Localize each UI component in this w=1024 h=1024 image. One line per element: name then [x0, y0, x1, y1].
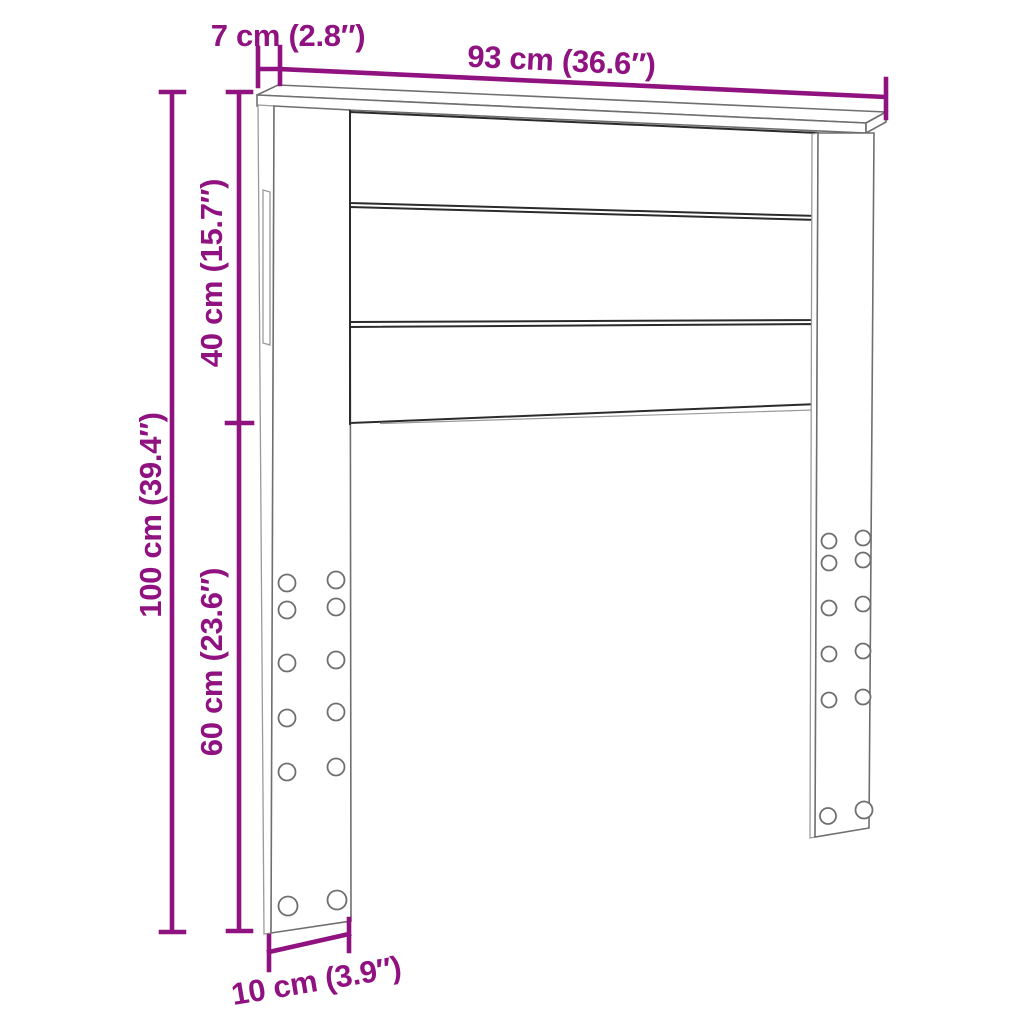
- screw-hole: [856, 553, 871, 568]
- left-leg: [258, 105, 351, 934]
- diagram-canvas: 7 cm (2.8″) 93 cm (36.6″) 100 cm (39.4″)…: [0, 0, 1024, 1024]
- screw-hole: [820, 808, 836, 824]
- screw-hole: [822, 601, 837, 616]
- screw-hole: [822, 647, 837, 662]
- screw-hole: [279, 710, 296, 727]
- left-leg-front-face: [271, 106, 351, 933]
- dimension-total-height: 100 cm (39.4″): [133, 92, 184, 932]
- dimension-leg-depth: 10 cm (3.9″): [229, 919, 404, 1012]
- right-leg: [810, 133, 874, 838]
- dimension-label-cap-depth: 7 cm (2.8″): [211, 18, 366, 53]
- dimension-line-upper-lower: [227, 92, 252, 931]
- screw-hole: [822, 534, 837, 549]
- screw-hole: [279, 655, 296, 672]
- screw-hole: [856, 597, 871, 612]
- screw-hole: [279, 764, 296, 781]
- screw-hole: [856, 531, 871, 546]
- dimension-label-width: 93 cm (36.6″): [467, 39, 657, 83]
- screw-hole: [328, 704, 345, 721]
- screw-hole: [279, 575, 296, 592]
- screw-hole: [822, 556, 837, 571]
- slat-middle: [350, 207, 818, 322]
- dimension-label-total-height: 100 cm (39.4″): [133, 412, 168, 617]
- dimension-label-leg-depth: 10 cm (3.9″): [229, 949, 404, 1012]
- dimension-upper-lower-height: 40 cm (15.7″) 60 cm (23.6″): [194, 92, 252, 931]
- dimension-cap-depth: 7 cm (2.8″): [211, 18, 366, 86]
- headboard-dimension-diagram: 7 cm (2.8″) 93 cm (36.6″) 100 cm (39.4″)…: [0, 0, 1024, 1024]
- headboard-drawing: [257, 85, 886, 934]
- slat-bottom: [350, 324, 818, 424]
- screw-hole: [856, 690, 871, 705]
- screw-hole: [822, 693, 837, 708]
- dimension-label-lower-height: 60 cm (23.6″): [194, 568, 229, 756]
- screw-hole: [328, 759, 345, 776]
- screw-hole: [279, 897, 298, 916]
- screw-hole: [328, 652, 345, 669]
- screw-hole: [279, 602, 296, 619]
- left-leg-side-groove: [263, 190, 270, 345]
- screw-hole: [328, 599, 345, 616]
- right-leg-front-face: [815, 133, 874, 837]
- screw-hole: [328, 891, 347, 910]
- screw-hole: [328, 572, 345, 589]
- screw-hole: [856, 644, 871, 659]
- screw-hole: [856, 802, 873, 819]
- dimension-label-upper-height: 40 cm (15.7″): [194, 179, 229, 367]
